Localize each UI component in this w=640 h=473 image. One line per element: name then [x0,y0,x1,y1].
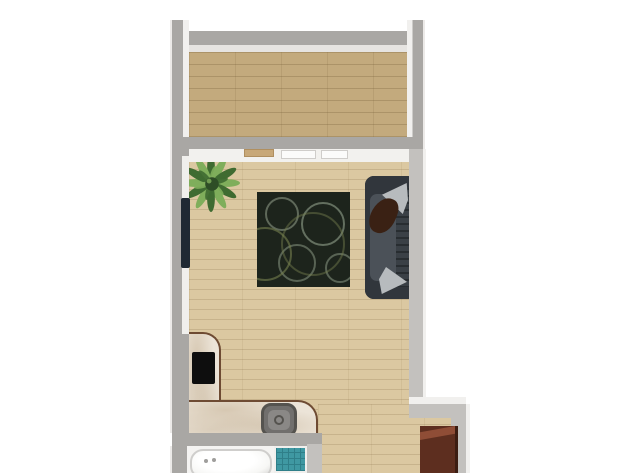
entry-cabinet [420,426,458,473]
living-room-right-wall [409,149,423,405]
balcony-living-divider-wall [172,137,423,149]
entry-step-wall-highlight [409,397,466,404]
bathtub [190,449,272,473]
balcony-right-wall [407,20,423,149]
sofa [365,176,411,299]
cooktop [192,352,215,384]
area-rug [257,192,350,287]
sink-drain [274,415,284,425]
plant-fronds [182,154,240,212]
floor-plan [0,0,640,473]
plant-pot [205,177,219,191]
rug-swirl-pattern [257,192,350,287]
potted-plant [182,154,240,212]
balcony-top-wall [189,31,407,45]
balcony-left-wall [172,20,189,149]
wall-mounted-tv [181,198,190,268]
balcony-threshold [189,45,407,52]
bathroom-top-wall [172,433,322,446]
shower-floor-tile [274,446,307,473]
kitchen-counter-horizontal [187,400,318,434]
bathroom-right-wall [307,444,322,473]
bathroom-left-wall [172,446,187,473]
wall-shelf [244,149,274,157]
window-1 [281,150,316,159]
kitchen-sink [261,403,297,437]
window-2 [321,150,348,159]
balcony-floor [189,52,407,137]
